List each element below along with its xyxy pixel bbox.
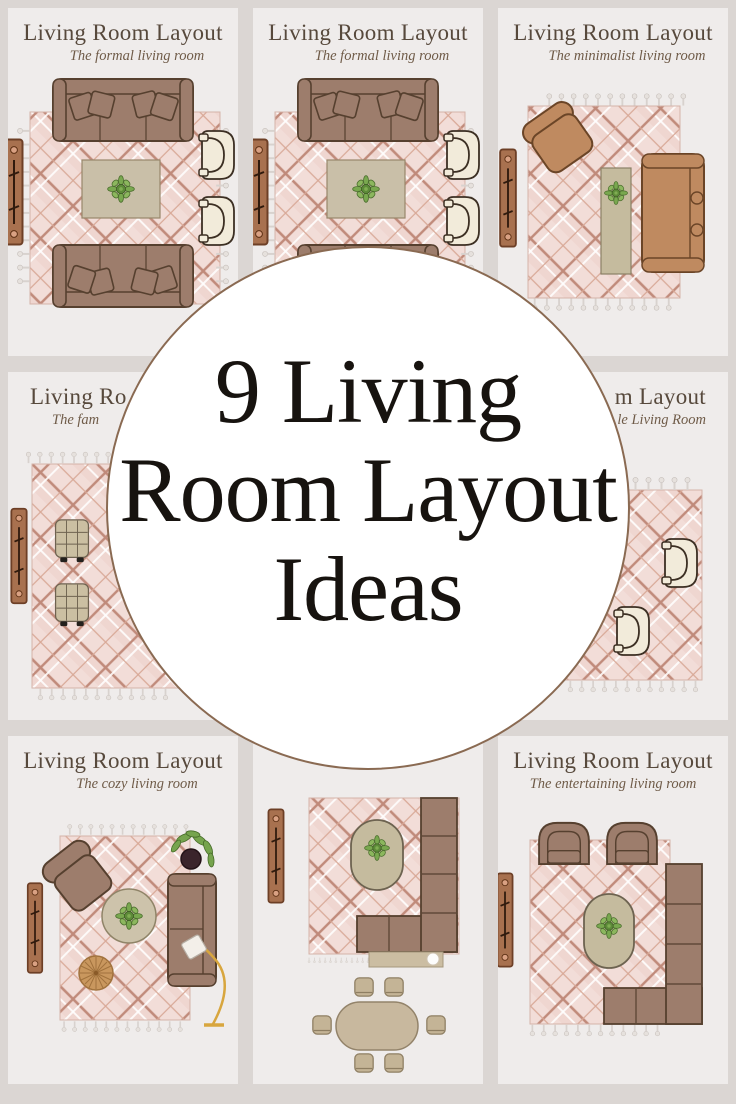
panel-head: Living Room Layout The cozy living room — [8, 748, 238, 793]
panel-head: Living Room Layout The entertaining livi… — [498, 748, 728, 793]
panel-title: Living Room Layout — [498, 748, 728, 773]
armchair-icon — [539, 823, 589, 864]
console-table-icon — [8, 140, 23, 245]
rug-fringe-icon — [38, 689, 168, 700]
console-table-icon — [28, 883, 42, 972]
pin-graphic: Living Room Layout The formal living roo… — [0, 0, 736, 1104]
rug-fringe-icon — [568, 681, 698, 692]
sofa-table-icon — [369, 952, 443, 967]
sofa-icon — [53, 79, 193, 141]
dining-chair-icon — [385, 1054, 403, 1072]
panel-title: Living Room Layout — [498, 20, 728, 45]
dining-chair-icon — [385, 978, 403, 996]
table-lamp-icon — [427, 953, 439, 965]
overlay-line-3: Ideas — [119, 540, 617, 639]
dining-set-icon — [313, 978, 445, 1072]
panel-sectional-dining — [253, 736, 483, 1084]
dining-chair-icon — [427, 1016, 445, 1034]
overlay-line-1: 9 Living — [119, 342, 617, 441]
rug-fringe-icon — [308, 958, 369, 963]
ottoman-icon — [56, 520, 89, 562]
panel-title: Living Room Layout — [253, 20, 483, 45]
panel-head: Living Room Layout The minimalist living… — [498, 20, 728, 65]
rug-fringe-icon — [530, 1025, 660, 1036]
dining-table-icon — [336, 1002, 418, 1050]
console-table-icon — [500, 149, 516, 246]
panel-head: Living Room Layout The formal living roo… — [253, 20, 483, 65]
panel-subtitle: The entertaining living room — [498, 776, 728, 793]
rug-fringe-icon — [68, 824, 188, 834]
panel-subtitle: The cozy living room — [22, 776, 252, 793]
rug-fringe-icon — [62, 1021, 182, 1031]
accent-chair-icon — [444, 131, 479, 179]
panel-subtitle: The formal living room — [267, 48, 497, 65]
accent-chair-icon — [614, 607, 649, 655]
console-table-icon — [268, 809, 283, 902]
panel-title: Living Room Layout — [8, 748, 238, 773]
overlay-title: 9 Living Room Layout Ideas — [119, 342, 617, 639]
console-table-icon — [11, 509, 26, 604]
overlay-line-2: Room Layout — [119, 441, 617, 540]
dining-chair-icon — [355, 1054, 373, 1072]
panel-entertaining: Living Room Layout The entertaining livi… — [498, 736, 728, 1084]
accent-chair-icon — [199, 197, 234, 245]
ottoman-icon — [56, 584, 89, 626]
room-illustration — [253, 736, 483, 1084]
pouf-icon — [79, 956, 113, 990]
dining-chair-icon — [355, 978, 373, 996]
panel-head: Living Room Layout The formal living roo… — [8, 20, 238, 65]
accent-chair-icon — [199, 131, 234, 179]
title-circle: 9 Living Room Layout Ideas — [106, 246, 630, 770]
sofa-icon — [53, 245, 193, 307]
console-table-icon — [498, 873, 513, 966]
sofa-icon — [168, 874, 216, 986]
dining-chair-icon — [313, 1016, 331, 1034]
sofa-icon — [642, 154, 704, 272]
accent-chair-icon — [444, 197, 479, 245]
panel-subtitle: The formal living room — [22, 48, 252, 65]
rug-fringe-icon — [532, 298, 671, 310]
accent-chair-icon — [662, 539, 697, 587]
console-table-icon — [253, 140, 268, 245]
panel-title: Living Room Layout — [8, 20, 238, 45]
panel-subtitle: The minimalist living room — [512, 48, 736, 65]
sofa-icon — [298, 79, 438, 141]
panel-cozy: Living Room Layout The cozy living room — [8, 736, 238, 1084]
armchair-icon — [607, 823, 657, 864]
